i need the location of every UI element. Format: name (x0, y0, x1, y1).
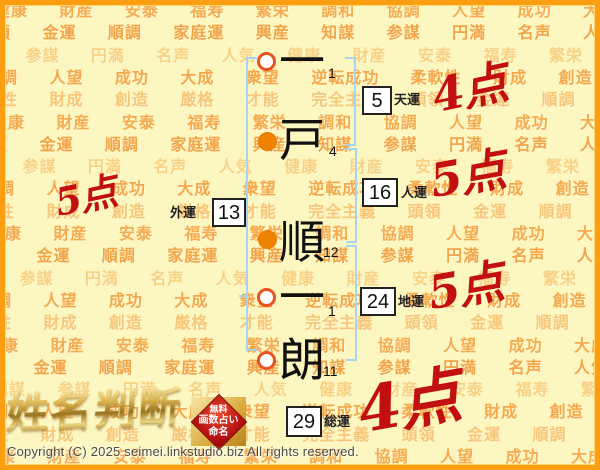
badge-line: 命名 (209, 427, 229, 439)
char-marker-circle (257, 288, 276, 307)
tenun-value-box: 5 (362, 86, 392, 115)
char-marker-circle (258, 230, 277, 249)
name-character: 一 (279, 38, 325, 84)
site-logo-seimei-handan[interactable]: 姓名判断 (4, 385, 183, 437)
gaiun-value-box: 13 (212, 198, 246, 227)
name-character: 一 (279, 274, 325, 320)
chiun-bracket (346, 245, 357, 361)
free-naming-badge[interactable]: 無料 画数占い 命名 (191, 397, 246, 446)
name-character: 順 (279, 219, 325, 265)
char-marker-circle (258, 132, 277, 151)
name-character: 戸 (279, 117, 325, 163)
souun-label: 総運 (324, 415, 350, 428)
jinun-bracket (346, 148, 357, 243)
stroke-count: 12 (323, 245, 339, 259)
tenun-label: 天運 (394, 93, 420, 106)
jinun-score: 5点 (427, 146, 508, 204)
souun-value-box: 29 (286, 406, 322, 437)
gaiun-bracket (246, 57, 257, 351)
stroke-count: 4 (329, 144, 337, 158)
copyright-notice: Copyright (C) 2025 seimei.linkstudio.biz… (7, 444, 359, 459)
stroke-count: 11 (323, 364, 338, 378)
gaiun-bracket-tick (239, 295, 247, 297)
chiun-value-box: 24 (360, 287, 396, 316)
tenun-score: 4点 (428, 59, 510, 119)
badge-line: 画数占い (199, 415, 239, 427)
jinun-label: 人運 (401, 186, 427, 199)
badge-line: 無料 (209, 404, 227, 415)
gaiun-score: 5点 (52, 172, 119, 222)
badge-text: 無料 画数占い 命名 (191, 397, 246, 446)
tenun-bracket (345, 57, 356, 146)
jinun-value-box: 16 (362, 178, 398, 207)
stroke-count: 1 (328, 66, 336, 80)
background-word-row: 健康 財産 安泰 福寿 繁栄 調和 協調 人望 成功 大成 衆望 逆転成功 柔軟… (0, 4, 600, 20)
char-marker-circle (257, 52, 276, 71)
stroke-count: 1 (328, 304, 336, 318)
chiun-label: 地運 (398, 295, 424, 308)
char-marker-circle (257, 351, 276, 370)
gaiun-label: 外運 (170, 206, 196, 219)
name-character: 朗 (279, 337, 325, 383)
souun-score: 4点 (353, 364, 463, 443)
seimei-handan-result-page: 健康 財産 安泰 福寿 繁栄 調和 協調 人望 成功 大成 衆望 逆転成功 柔軟… (0, 0, 600, 470)
chiun-score: 5点 (425, 258, 506, 316)
